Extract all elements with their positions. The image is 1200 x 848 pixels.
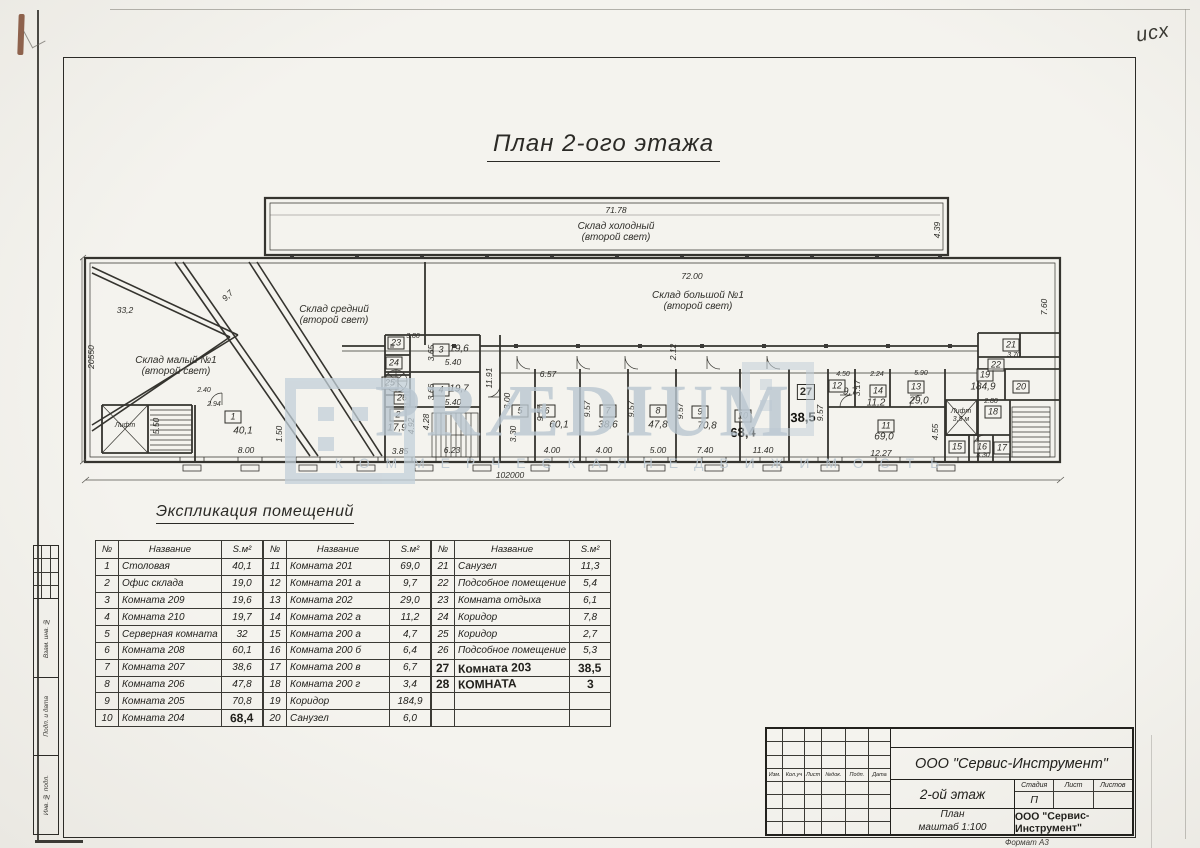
table-row: 27Комната 20338,5 (432, 659, 611, 676)
stage-table: СтадияЛистЛистов П (1015, 780, 1132, 808)
table-row: 6Комната 20860,1 (96, 642, 263, 659)
table-cell: Комната 210 (119, 609, 222, 626)
table-row: 14Комната 202 а11,2 (264, 609, 431, 626)
plan-dimension-label: 2.40 (197, 387, 211, 395)
explication-table: №НазваниеS.м²1Столовая40,12Офис склада19… (95, 540, 611, 727)
revision-cell (767, 756, 783, 768)
pen-mark (17, 14, 24, 55)
table-cell: 6,7 (390, 659, 431, 676)
table-cell: 60,1 (222, 642, 263, 659)
table-cell: 3 (96, 592, 119, 609)
table-cell (455, 693, 570, 710)
side-stamp-cell: Подп. и дата (34, 678, 58, 757)
plan-dimension-label: 4.55 (931, 424, 941, 441)
revision-cell (805, 742, 821, 754)
explication-heading: Экспликация помещений (156, 503, 354, 524)
explication-group: №НазваниеS.м²21Санузел11,322Подсобное по… (431, 540, 611, 727)
plan-dimension-label: 72.00 (681, 272, 702, 282)
side-stamp: Взам. инв. №Подп. и датаИнв. № подл. (33, 545, 59, 835)
table-cell: 11,3 (570, 559, 611, 576)
plan-dimension-label: 5.90 (914, 370, 928, 378)
plan-dimension-label: 60,1 (549, 419, 568, 430)
table-cell: Санузел (287, 710, 390, 727)
table-cell: Комната 202 (287, 592, 390, 609)
revision-cell (822, 782, 846, 794)
plan-dimension-label: 4.28 (422, 414, 432, 431)
table-row: 12Комната 201 а9,7 (264, 575, 431, 592)
table-row: 8Комната 20647,8 (96, 676, 263, 693)
table-cell: 6,0 (390, 710, 431, 727)
table-cell: Комната 204 (119, 710, 222, 727)
side-stamp-grid (34, 546, 58, 599)
revision-header: Подп. (846, 769, 869, 781)
plan-dimension-label: 70,8 (697, 420, 716, 431)
revision-cell (783, 782, 805, 794)
column-header: Название (119, 541, 222, 559)
table-row: 7Комната 20738,6 (96, 659, 263, 676)
revision-cell (822, 742, 846, 754)
table-cell: 32 (222, 626, 263, 643)
table-cell: 18 (264, 676, 287, 693)
sheet-title: План 2-ого этажа (487, 130, 720, 162)
table-row: 9Комната 20570,8 (96, 693, 263, 710)
room-number-box: 25 (382, 377, 399, 390)
plan-room-name: Склад холодный (второй свет) (578, 221, 655, 243)
room-number-box: 15 (949, 441, 966, 454)
table-cell: 5 (96, 626, 119, 643)
list-value (1054, 792, 1093, 808)
column-header: S.м² (570, 541, 611, 559)
stage-header: Листов (1094, 780, 1132, 791)
plan-dimension-label: 17,9 (387, 422, 406, 433)
plan-dimension-label: 6.23 (444, 446, 461, 456)
revision-cell (846, 822, 869, 834)
stage-value: П (1015, 792, 1054, 808)
room-number-box: 5 (512, 405, 529, 418)
table-cell: Комната 203 (455, 659, 570, 676)
table-cell: Комната 201 а (287, 575, 390, 592)
revision-cell (767, 729, 783, 741)
table-cell: 16 (264, 642, 287, 659)
corner-handwritten-note: исх (1134, 20, 1171, 48)
revision-cell (783, 729, 805, 741)
table-cell: 70,8 (222, 693, 263, 710)
revision-cell (869, 795, 890, 807)
revision-cell (869, 729, 890, 741)
plan-dimension-label: 5.00 (650, 446, 667, 456)
revision-header: №док. (822, 769, 846, 781)
revision-cell (822, 795, 846, 807)
table-cell: Комната 207 (119, 659, 222, 676)
bottom-windows (180, 457, 958, 471)
plan-dimension-label: 102000 (496, 471, 524, 481)
table-cell: Коридор (287, 693, 390, 710)
room-number-box: 10 (735, 410, 752, 423)
plan-dimension-label: 38,5 (790, 410, 816, 425)
table-row: 22Подсобное помещение5,4 (432, 575, 611, 592)
title-block: Изм.Кол.учЛист№док.Подп.Дата ООО "Сервис… (765, 727, 1134, 836)
scan-fold-line (1151, 735, 1152, 848)
plan-dimension-label: Лифт (115, 422, 135, 430)
plan-dimension-label: 4.00 (596, 446, 613, 456)
table-cell: 10 (96, 710, 119, 727)
table-cell: 19 (264, 693, 287, 710)
table-cell: Офис склада (119, 575, 222, 592)
table-row: 26Подсобное помещение5,3 (432, 642, 611, 659)
format-note: Формат А3 (1005, 838, 1049, 847)
revision-cell (805, 756, 821, 768)
table-cell: 38,6 (222, 659, 263, 676)
table-row: 17Комната 200 в6,7 (264, 659, 431, 676)
revision-cell (869, 782, 890, 794)
room-number-box: 24 (386, 357, 403, 370)
revision-cell (846, 795, 869, 807)
table-cell: 5,3 (570, 642, 611, 659)
room-number-box: 21 (1003, 339, 1020, 352)
plan-dimension-label: 3.85 (392, 447, 409, 457)
room-number-box: 26 (394, 392, 411, 405)
plan-dimension-label: 12.27 (870, 449, 891, 459)
table-row: 24Коридор7,8 (432, 609, 611, 626)
table-cell: 24 (432, 609, 455, 626)
table-cell: 1 (96, 559, 119, 576)
plan-dimension-label: 9.57 (676, 403, 686, 420)
table-cell (455, 710, 570, 727)
revision-cell (783, 822, 805, 834)
table-cell: 29,0 (390, 592, 431, 609)
table-cell: 4,7 (390, 626, 431, 643)
table-cell: Комната 200 б (287, 642, 390, 659)
table-cell: 38,5 (570, 659, 611, 676)
room-number-box: 20 (1013, 381, 1030, 394)
room-number-box: 7 (600, 405, 617, 418)
table-row: 19Коридор184,9 (264, 693, 431, 710)
revision-header: Лист (805, 769, 821, 781)
plan-dimension-label: 5.40 (445, 358, 462, 368)
plan-dimension-label: 3.17 (853, 380, 863, 397)
org-handwritten: ООО "Сервис-Инструмент" (1015, 808, 1132, 835)
plan-dimension-label: 2.24 (870, 371, 884, 379)
table-cell: Подсобное помещение (455, 642, 570, 659)
plan-dimension-label: 68,4 (730, 425, 756, 440)
table-cell: Санузел (455, 559, 570, 576)
revision-cell (783, 756, 805, 768)
table-cell: Подсобное помещение (455, 575, 570, 592)
plan-dimension-label: 29,0 (909, 395, 928, 406)
plan-dimension-label: 3.30 (509, 426, 519, 443)
plan-dimension-label: 9.57 (816, 405, 826, 422)
table-cell: 27 (432, 659, 455, 676)
table-row (432, 710, 611, 727)
listov-value (1094, 792, 1132, 808)
plan-dimension-label: 33,2 (117, 306, 134, 316)
plan-dimension-label: 8.00 (238, 446, 255, 456)
table-cell: Столовая (119, 559, 222, 576)
revision-cell (869, 742, 890, 754)
table-cell: Комната 205 (119, 693, 222, 710)
table-row: 21Санузел11,3 (432, 559, 611, 576)
table-cell: Комната 209 (119, 592, 222, 609)
table-cell: Комната 201 (287, 559, 390, 576)
table-cell: КОМНАТА (455, 676, 570, 693)
table-cell: 11,2 (390, 609, 431, 626)
column-header: № (264, 541, 287, 559)
revision-header: Изм. (767, 769, 783, 781)
table-row: 15Комната 200 а4,7 (264, 626, 431, 643)
plan-dimension-label: 11,2 (867, 397, 886, 408)
revision-cell (767, 795, 783, 807)
revision-cell (767, 742, 783, 754)
table-cell: 2,7 (570, 626, 611, 643)
table-row: 3Комната 20919,6 (96, 592, 263, 609)
column-header: № (96, 541, 119, 559)
table-row: 23Комната отдыха6,1 (432, 592, 611, 609)
table-cell: 22 (432, 575, 455, 592)
plan-dimension-label: 7.60 (1040, 299, 1050, 316)
table-cell: 19,7 (222, 609, 263, 626)
table-cell (432, 693, 455, 710)
side-stamp-label: Подп. и дата (43, 696, 50, 737)
plan-dimension-label: 20550 (87, 345, 97, 369)
table-row: 11Комната 20169,0 (264, 559, 431, 576)
table-row: 18Комната 200 г3,4 (264, 676, 431, 693)
scanned-sheet: исх План 2-ого этажа (0, 0, 1200, 848)
table-cell: 6,1 (570, 592, 611, 609)
column-header: S.м² (222, 541, 263, 559)
table-cell: 8 (96, 676, 119, 693)
table-cell: 3,4 (390, 676, 431, 693)
column-header: S.м² (390, 541, 431, 559)
table-cell: 19,0 (222, 575, 263, 592)
plan-dimension-label: 9.57 (583, 401, 593, 418)
revision-cell (846, 729, 869, 741)
revision-cell (846, 782, 869, 794)
explication-group: №НазваниеS.м²1Столовая40,12Офис склада19… (95, 540, 263, 727)
table-cell: Комната 202 а (287, 609, 390, 626)
revision-cell (869, 822, 890, 834)
plan-dimension-label: 3.80 (406, 333, 420, 341)
table-cell: 184,9 (390, 693, 431, 710)
plan-dimension-label: 3.70 (1007, 352, 1021, 360)
company-name: ООО "Сервис-Инструмент" (891, 748, 1132, 780)
table-cell: 2 (96, 575, 119, 592)
table-row: 28КОМНАТА3 (432, 676, 611, 693)
scan-edge-right (1185, 9, 1186, 839)
room-number-box: 16 (974, 441, 991, 454)
plan-dimension-label: 5.50 (152, 418, 162, 435)
table-cell: 21 (432, 559, 455, 576)
explication-group: №НазваниеS.м²11Комната 20169,012Комната … (263, 540, 431, 727)
table-cell: 7 (96, 659, 119, 676)
revision-cell (783, 809, 805, 821)
table-cell: 14 (264, 609, 287, 626)
table-cell: Комната отдыха (455, 592, 570, 609)
revision-grid: Изм.Кол.учЛист№док.Подп.Дата (767, 729, 891, 834)
plan-dimension-label: 4.92 (407, 418, 417, 435)
room-number-box: 11 (878, 420, 895, 433)
revision-cell (805, 782, 821, 794)
table-cell (570, 693, 611, 710)
plan-room-name: Склад большой №1 (второй свет) (652, 290, 744, 312)
revision-cell (767, 782, 783, 794)
revision-cell (869, 809, 890, 821)
table-cell: 4 (96, 609, 119, 626)
table-cell: 15 (264, 626, 287, 643)
table-cell: 23 (432, 592, 455, 609)
table-cell: Комната 200 а (287, 626, 390, 643)
table-cell: 3 (570, 676, 611, 693)
plan-dimension-label: 7.40 (697, 446, 714, 456)
side-stamp-label: Инв. № подл. (43, 775, 50, 815)
table-cell: Коридор (455, 609, 570, 626)
revision-cell (783, 742, 805, 754)
room-number-box: 6 (539, 405, 556, 418)
table-cell: Коридор (455, 626, 570, 643)
stage-header: Лист (1054, 780, 1093, 791)
room-number-box: 13 (908, 381, 925, 394)
room-number-box: 2 (390, 409, 407, 422)
room-number-box: 17 (994, 442, 1011, 455)
table-cell: 20 (264, 710, 287, 727)
room-number-box: 4 (433, 384, 450, 397)
revision-cell (767, 822, 783, 834)
column-header: Название (287, 541, 390, 559)
table-row: 25Коридор2,7 (432, 626, 611, 643)
plan-dimension-label: 4.00 (544, 446, 561, 456)
table-cell: Комната 208 (119, 642, 222, 659)
plan-dimension-label: 184,9 (970, 381, 995, 392)
table-cell: 69,0 (390, 559, 431, 576)
table-cell (570, 710, 611, 727)
table-cell: Комната 200 г (287, 676, 390, 693)
room-number-box: 12 (829, 380, 846, 393)
wall-column-marks (290, 255, 952, 348)
table-cell: 47,8 (222, 676, 263, 693)
room-number-box: 18 (985, 406, 1002, 419)
plan-dimension-label: 2.94 (207, 401, 221, 409)
scan-edge-top (110, 9, 1190, 10)
plan-dimension-label: 19,6 (449, 343, 468, 354)
plan-dimension-label: 40,1 (233, 425, 252, 436)
table-cell: 28 (432, 676, 455, 693)
table-cell: 11 (264, 559, 287, 576)
plan-dimension-label: 19,7 (449, 383, 468, 394)
table-cell: 9 (96, 693, 119, 710)
table-cell: Серверная комната (119, 626, 222, 643)
column-header: Название (455, 541, 570, 559)
revision-header: Кол.уч (783, 769, 805, 781)
plan-dimension-label: 4.39 (933, 222, 943, 239)
revision-cell (822, 756, 846, 768)
table-cell: 9,7 (390, 575, 431, 592)
plan-dimension-label: 11.40 (753, 446, 774, 456)
table-cell: 7,8 (570, 609, 611, 626)
table-cell: 6,4 (390, 642, 431, 659)
revision-cell (805, 822, 821, 834)
room-number-box: 8 (650, 405, 667, 418)
table-cell: 68,4 (222, 710, 263, 727)
room-number-box: 3 (433, 344, 450, 357)
table-cell: Комната 206 (119, 676, 222, 693)
revision-cell (846, 809, 869, 821)
floor-plan-walls (80, 185, 1070, 505)
revision-cell (805, 809, 821, 821)
table-cell: 19,6 (222, 592, 263, 609)
floor-plan: Склад холодный (второй свет)Склад большо… (80, 185, 1070, 505)
sheet-name: План маштаб 1:100 (891, 809, 1015, 834)
table-row: 1Столовая40,1 (96, 559, 263, 576)
plan-dimension-label: 71.78 (605, 206, 626, 216)
table-row: 2Офис склада19,0 (96, 575, 263, 592)
plan-dimension-label: 9.57 (627, 401, 637, 418)
table-cell: Комната 200 в (287, 659, 390, 676)
plan-dimension-label: 1.50 (275, 426, 285, 443)
plan-dimension-label: Лифт 3,5 м (951, 408, 971, 424)
table-cell: 26 (432, 642, 455, 659)
plan-dimension-label: 47,8 (648, 419, 667, 430)
table-row: 4Комната 21019,7 (96, 609, 263, 626)
table-row: 5Серверная комната32 (96, 626, 263, 643)
revision-cell (783, 795, 805, 807)
revision-cell (822, 729, 846, 741)
scribble-mark (23, 25, 45, 49)
table-row: 20Санузел6,0 (264, 710, 431, 727)
plan-dimension-label: 2.12 (669, 344, 679, 361)
object-name: 2-ой этаж (891, 780, 1015, 808)
column-header: № (432, 541, 455, 559)
stage-headers: СтадияЛистЛистов (1015, 780, 1132, 792)
stage-values: П (1015, 792, 1132, 808)
room-number-box: 22 (988, 359, 1005, 372)
side-stamp-cell: Инв. № подл. (34, 756, 58, 834)
side-stamp-label: Взам. инв. № (43, 618, 50, 658)
plan-room-name: Склад малый №1 (второй свет) (135, 355, 216, 377)
revision-cell (846, 756, 869, 768)
room-number-box: 14 (870, 385, 887, 398)
plan-dimension-label: 69,0 (874, 431, 893, 442)
room-number-box: 27 (797, 384, 815, 400)
plan-dimension-label: 38,6 (598, 419, 617, 430)
revision-cell (846, 742, 869, 754)
table-row: 13Комната 20229,0 (264, 592, 431, 609)
side-stamp-cell: Взам. инв. № (34, 599, 58, 678)
table-row: 16Комната 200 б6,4 (264, 642, 431, 659)
table-cell (432, 710, 455, 727)
scan-edge-bottom (35, 840, 83, 843)
table-cell: 5,4 (570, 575, 611, 592)
revision-cell (805, 795, 821, 807)
room-number-box: 23 (388, 337, 405, 350)
title-block-empty-row (891, 729, 1132, 748)
revision-header: Дата (869, 769, 890, 781)
revision-cell (767, 809, 783, 821)
room-number-box: 9 (692, 406, 709, 419)
room-number-box: 1 (225, 411, 242, 424)
table-row (432, 693, 611, 710)
table-cell: 40,1 (222, 559, 263, 576)
revision-cell (869, 756, 890, 768)
revision-cell (805, 729, 821, 741)
plan-room-name: Склад средний (второй свет) (299, 304, 369, 326)
table-row: 10Комната 20468,4 (96, 710, 263, 727)
table-cell: 12 (264, 575, 287, 592)
table-cell: 13 (264, 592, 287, 609)
plan-dimension-label: 6.57 (540, 370, 557, 380)
plan-dimension-label: 11.91 (485, 368, 495, 389)
table-cell: 25 (432, 626, 455, 643)
stage-header: Стадия (1015, 780, 1054, 791)
plan-dimension-label: 4.50 (836, 371, 850, 379)
